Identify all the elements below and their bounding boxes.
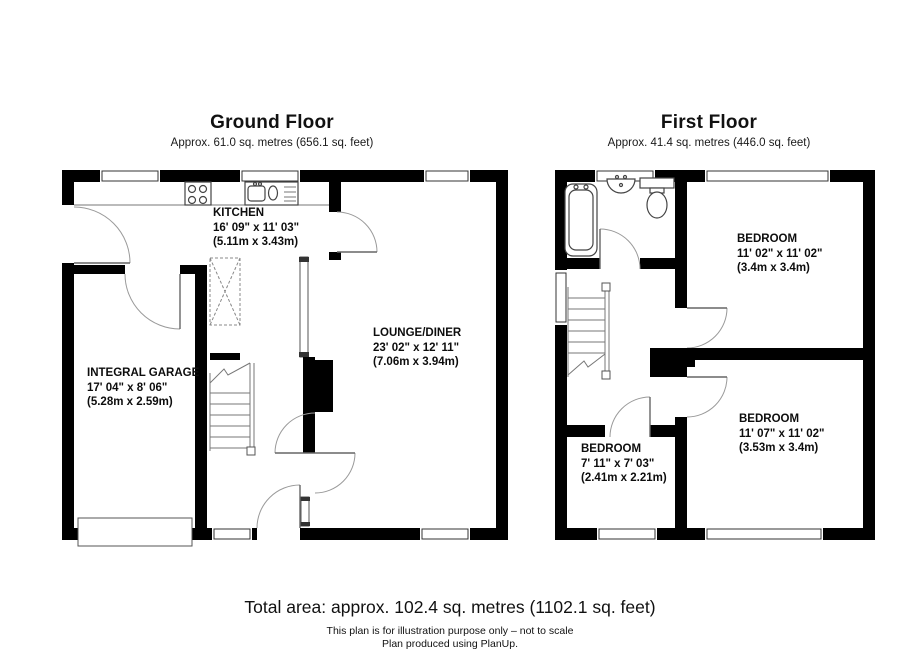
first-floor-area: Approx. 41.4 sq. metres (446.0 sq. feet) bbox=[549, 137, 869, 149]
window bbox=[553, 270, 569, 325]
kitchen-lounge-door bbox=[337, 212, 377, 252]
total-area-text: Total area: approx. 102.4 sq. metres (11… bbox=[0, 597, 900, 618]
sink-icon bbox=[245, 182, 298, 205]
window bbox=[212, 526, 252, 542]
first-floor-title: First Floor bbox=[549, 112, 869, 134]
garage-entry-door bbox=[125, 274, 180, 329]
bedroom1-label: BEDROOM 11' 02" x 11' 02" (3.4m x 3.4m) bbox=[737, 232, 822, 276]
room-name: BEDROOM bbox=[581, 442, 667, 457]
room-size-metric: (2.41m x 2.21m) bbox=[581, 471, 667, 486]
window bbox=[597, 526, 657, 542]
window bbox=[705, 526, 823, 542]
window bbox=[100, 168, 160, 184]
window bbox=[424, 168, 470, 184]
room-size-imperial: 11' 02" x 11' 02" bbox=[737, 247, 822, 262]
stairs bbox=[210, 353, 255, 455]
room-size-metric: (7.06m x 3.94m) bbox=[373, 355, 461, 370]
door-sidelight bbox=[300, 497, 310, 526]
bedroom3-label: BEDROOM 7' 11" x 7' 03" (2.41m x 2.21m) bbox=[581, 442, 667, 486]
bedroom1-walls bbox=[675, 269, 687, 308]
window bbox=[705, 168, 830, 184]
room-size-imperial: 11' 07" x 11' 02" bbox=[739, 427, 824, 442]
stairs bbox=[568, 283, 610, 379]
bath-icon bbox=[565, 184, 597, 256]
disclaimer-text: This plan is for illustration purpose on… bbox=[0, 625, 900, 637]
bathroom-door bbox=[600, 229, 640, 269]
room-size-imperial: 23' 02" x 12' 11" bbox=[373, 341, 461, 356]
room-name: KITCHEN bbox=[213, 206, 299, 221]
ground-floor-header: Ground Floor Approx. 61.0 sq. metres (65… bbox=[62, 112, 482, 149]
room-size-imperial: 17' 04" x 8' 06" bbox=[87, 381, 199, 396]
bedroom2-walls bbox=[675, 360, 687, 528]
ground-floor-area: Approx. 61.0 sq. metres (656.1 sq. feet) bbox=[62, 137, 482, 149]
room-size-imperial: 16' 09" x 11' 03" bbox=[213, 221, 299, 236]
bedroom3-walls bbox=[567, 425, 687, 437]
lounge-diner-label: LOUNGE/DINER 23' 02" x 12' 11" (7.06m x … bbox=[373, 326, 461, 370]
hall-lounge-panel bbox=[299, 257, 309, 357]
room-name: BEDROOM bbox=[737, 232, 822, 247]
credit-text: Plan produced using PlanUp. bbox=[0, 638, 900, 650]
kitchen-lounge-wall bbox=[329, 182, 341, 260]
lounge-door bbox=[315, 453, 355, 493]
integral-garage-label: INTEGRAL GARAGE 17' 04" x 8' 06" (5.28m … bbox=[87, 366, 199, 410]
room-name: LOUNGE/DINER bbox=[373, 326, 461, 341]
hob-icon bbox=[185, 182, 211, 205]
room-name: INTEGRAL GARAGE bbox=[87, 366, 199, 381]
toilet-icon bbox=[640, 178, 674, 218]
room-size-metric: (5.28m x 2.59m) bbox=[87, 395, 199, 410]
chimney-breast bbox=[303, 357, 333, 453]
bedroom2-label: BEDROOM 11' 07" x 11' 02" (3.53m x 3.4m) bbox=[739, 412, 824, 456]
room-name: BEDROOM bbox=[739, 412, 824, 427]
garage-door bbox=[78, 518, 192, 546]
cupboard-dashed-box bbox=[210, 258, 240, 325]
first-floor-header: First Floor Approx. 41.4 sq. metres (446… bbox=[549, 112, 869, 149]
floorplan-page: Ground Floor Approx. 61.0 sq. metres (65… bbox=[0, 0, 900, 654]
bedroom1-door bbox=[687, 308, 727, 348]
bedroom3-door bbox=[610, 397, 650, 437]
room-size-metric: (5.11m x 3.43m) bbox=[213, 235, 299, 250]
kitchen-label: KITCHEN 16' 09" x 11' 03" (5.11m x 3.43m… bbox=[213, 206, 299, 250]
front-door bbox=[257, 485, 300, 542]
room-size-imperial: 7' 11" x 7' 03" bbox=[581, 457, 667, 472]
ground-floor-title: Ground Floor bbox=[62, 112, 482, 134]
back-door bbox=[62, 205, 130, 263]
room-size-metric: (3.4m x 3.4m) bbox=[737, 261, 822, 276]
room-size-metric: (3.53m x 3.4m) bbox=[739, 441, 824, 456]
first-floor-plan bbox=[552, 163, 878, 549]
bedroom2-door bbox=[687, 377, 727, 417]
window bbox=[420, 526, 470, 542]
